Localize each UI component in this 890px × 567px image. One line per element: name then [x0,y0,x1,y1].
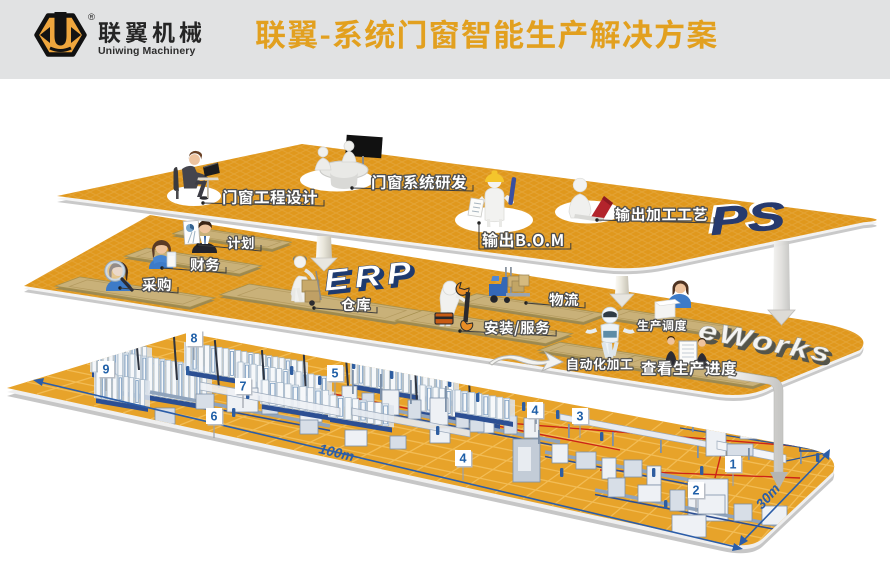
svg-text:Uniwing Machinery: Uniwing Machinery [98,45,195,57]
svg-text:3: 3 [577,410,584,424]
svg-text:8: 8 [191,332,198,346]
svg-text:5: 5 [332,367,339,381]
svg-text:7: 7 [240,380,247,394]
svg-text:2: 2 [693,484,700,498]
svg-text:4: 4 [460,452,467,466]
svg-text:1: 1 [730,458,737,472]
svg-text:®: ® [88,12,95,23]
svg-text:9: 9 [103,363,110,377]
svg-text:6: 6 [211,410,218,424]
svg-text:4: 4 [532,404,539,418]
svg-text:PS: PS [708,194,787,244]
